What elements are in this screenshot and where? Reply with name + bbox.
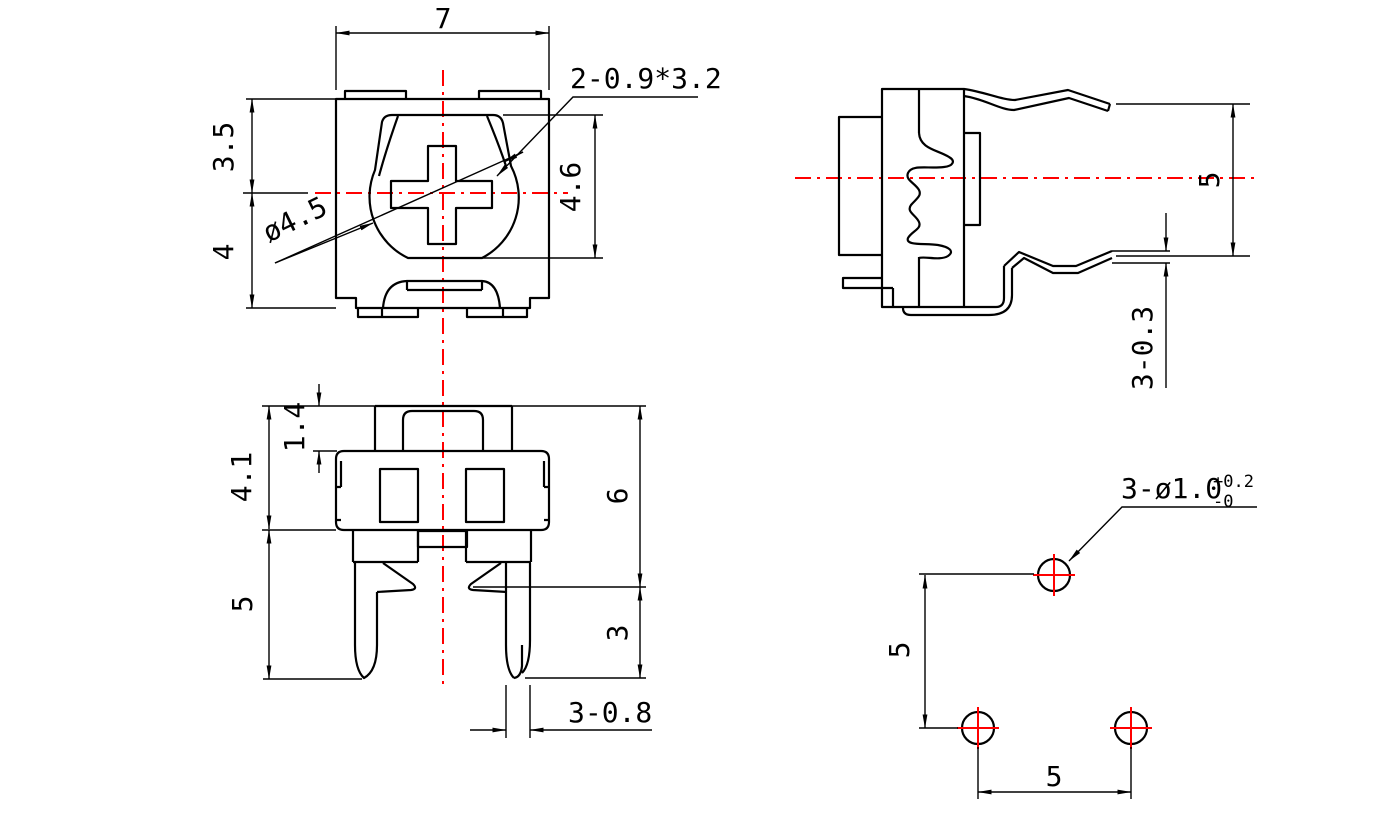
dim-label-hole-callout: 3-ø1.0 xyxy=(1121,472,1222,505)
dim-label-rotor-height: 4.6 xyxy=(554,162,587,213)
left-leg-barb xyxy=(377,563,415,592)
side-view-body xyxy=(882,89,964,307)
hole-bottom-right-crosshair xyxy=(1110,707,1152,749)
side-view-bottom-tab xyxy=(843,278,893,307)
dimension-pin-span: 5 xyxy=(1112,104,1250,263)
dim-label-pin-thickness: 3-0.3 xyxy=(1126,306,1159,390)
dim-label-leg-length: 5 xyxy=(226,596,259,613)
top-view: 7 3.5 4 4.6 ø4.5 2-0.9*3.2 xyxy=(207,2,722,688)
dim-label-rotor-diameter: ø4.5 xyxy=(257,190,332,249)
bottom-pin xyxy=(1004,251,1112,273)
dim-label-leg-width: 3-0.8 xyxy=(568,696,652,729)
top-view-right-tab xyxy=(479,91,541,99)
dimension-body-height: 6 xyxy=(473,406,646,587)
footprint-view: 5 5 3-ø1.0 +0.2 -0 xyxy=(883,472,1257,799)
left-leg xyxy=(355,563,377,678)
leader-cross-slot: 2-0.9*3.2 xyxy=(497,62,722,176)
side-view-left-block xyxy=(839,117,882,255)
spring-clip-profile xyxy=(907,133,952,258)
dim-label-body-height: 6 xyxy=(601,488,634,505)
dim-label-hole-tol-plus: +0.2 xyxy=(1213,472,1254,492)
dimension-rotor-height: 4.6 xyxy=(482,115,603,258)
front-view-left-window xyxy=(380,469,418,522)
top-view-bottom-arch xyxy=(383,281,500,308)
technical-drawing: 7 3.5 4 4.6 ø4.5 2-0.9*3.2 xyxy=(0,0,1387,822)
dim-label-lower-height: 4 xyxy=(207,244,240,261)
dim-label-pin-span: 5 xyxy=(1193,172,1226,189)
dim-label-upper-height: 3.5 xyxy=(207,122,240,173)
dimension-leg-width: 3-0.8 xyxy=(470,685,652,738)
front-view: 1.4 4.1 5 6 3 xyxy=(225,384,652,738)
dimension-row-pitch: 5 xyxy=(883,574,1034,728)
dim-label-col-pitch: 5 xyxy=(1046,760,1063,793)
hole-top-crosshair xyxy=(1033,554,1075,596)
dimension-col-pitch: 5 xyxy=(978,747,1131,799)
cross-slot xyxy=(391,146,492,244)
leader-hole-callout: 3-ø1.0 +0.2 -0 xyxy=(1069,472,1257,561)
front-view-right-window xyxy=(466,469,504,522)
hole-bottom-left-crosshair xyxy=(957,707,999,749)
drawing-canvas: 7 3.5 4 4.6 ø4.5 2-0.9*3.2 xyxy=(0,0,1387,822)
dimension-leg-length: 5 xyxy=(226,530,362,679)
dimension-pin-thickness: 3-0.3 xyxy=(1126,213,1166,390)
dim-label-overall-width: 7 xyxy=(435,2,452,35)
right-leg xyxy=(506,563,530,678)
dimension-leg-exposed: 3 xyxy=(525,587,646,678)
side-view: 5 3-0.3 xyxy=(795,89,1258,390)
top-view-bottom-right-tab xyxy=(467,308,527,317)
top-view-left-tab xyxy=(345,91,406,99)
dim-label-leg-exposed: 3 xyxy=(601,625,634,642)
dim-label-upper-body: 4.1 xyxy=(225,452,258,503)
top-pin xyxy=(964,89,1110,111)
dim-label-row-pitch: 5 xyxy=(883,642,916,659)
dim-label-cap-height: 1.4 xyxy=(278,402,311,453)
dimension-cap-height: 1.4 xyxy=(262,384,375,473)
dim-label-cross-slot: 2-0.9*3.2 xyxy=(570,62,722,95)
dim-label-hole-tol-minus: -0 xyxy=(1213,492,1233,512)
top-view-bottom-left-tab xyxy=(358,308,418,317)
